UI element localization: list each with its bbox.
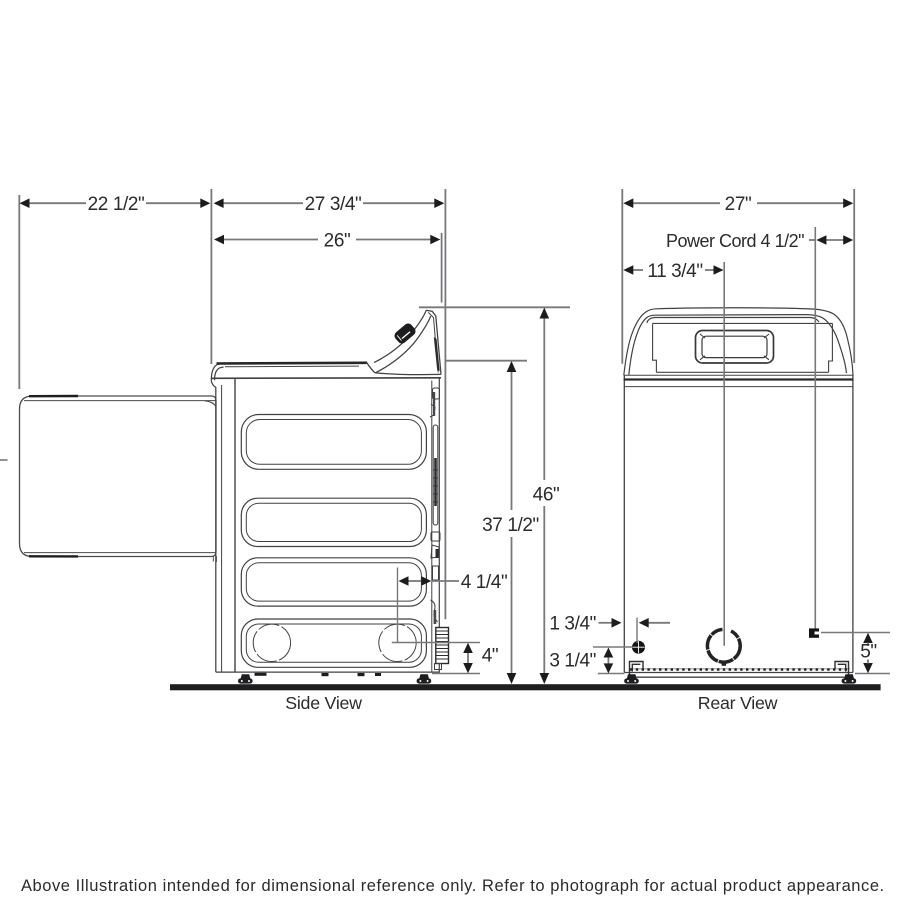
svg-text:4 1/4": 4 1/4" [461, 572, 508, 593]
svg-text:27": 27" [725, 194, 752, 215]
svg-text:Side View: Side View [285, 693, 362, 713]
svg-text:4": 4" [482, 646, 499, 667]
svg-text:5": 5" [860, 642, 877, 663]
svg-text:26": 26" [324, 230, 351, 251]
svg-text:Power Cord 4 1/2": Power Cord 4 1/2" [666, 231, 804, 251]
svg-text:22 1/2": 22 1/2" [88, 194, 145, 215]
svg-text:1 3/4": 1 3/4" [549, 614, 596, 635]
svg-text:Above Illustration intended fo: Above Illustration intended for dimensio… [21, 877, 885, 895]
svg-text:27 3/4": 27 3/4" [305, 194, 362, 215]
svg-text:3 1/4": 3 1/4" [549, 651, 596, 672]
svg-text:46": 46" [533, 485, 560, 506]
svg-text:Rear View: Rear View [698, 693, 778, 713]
svg-text:11 3/4": 11 3/4" [647, 261, 702, 282]
svg-text:37 1/2": 37 1/2" [482, 515, 539, 536]
